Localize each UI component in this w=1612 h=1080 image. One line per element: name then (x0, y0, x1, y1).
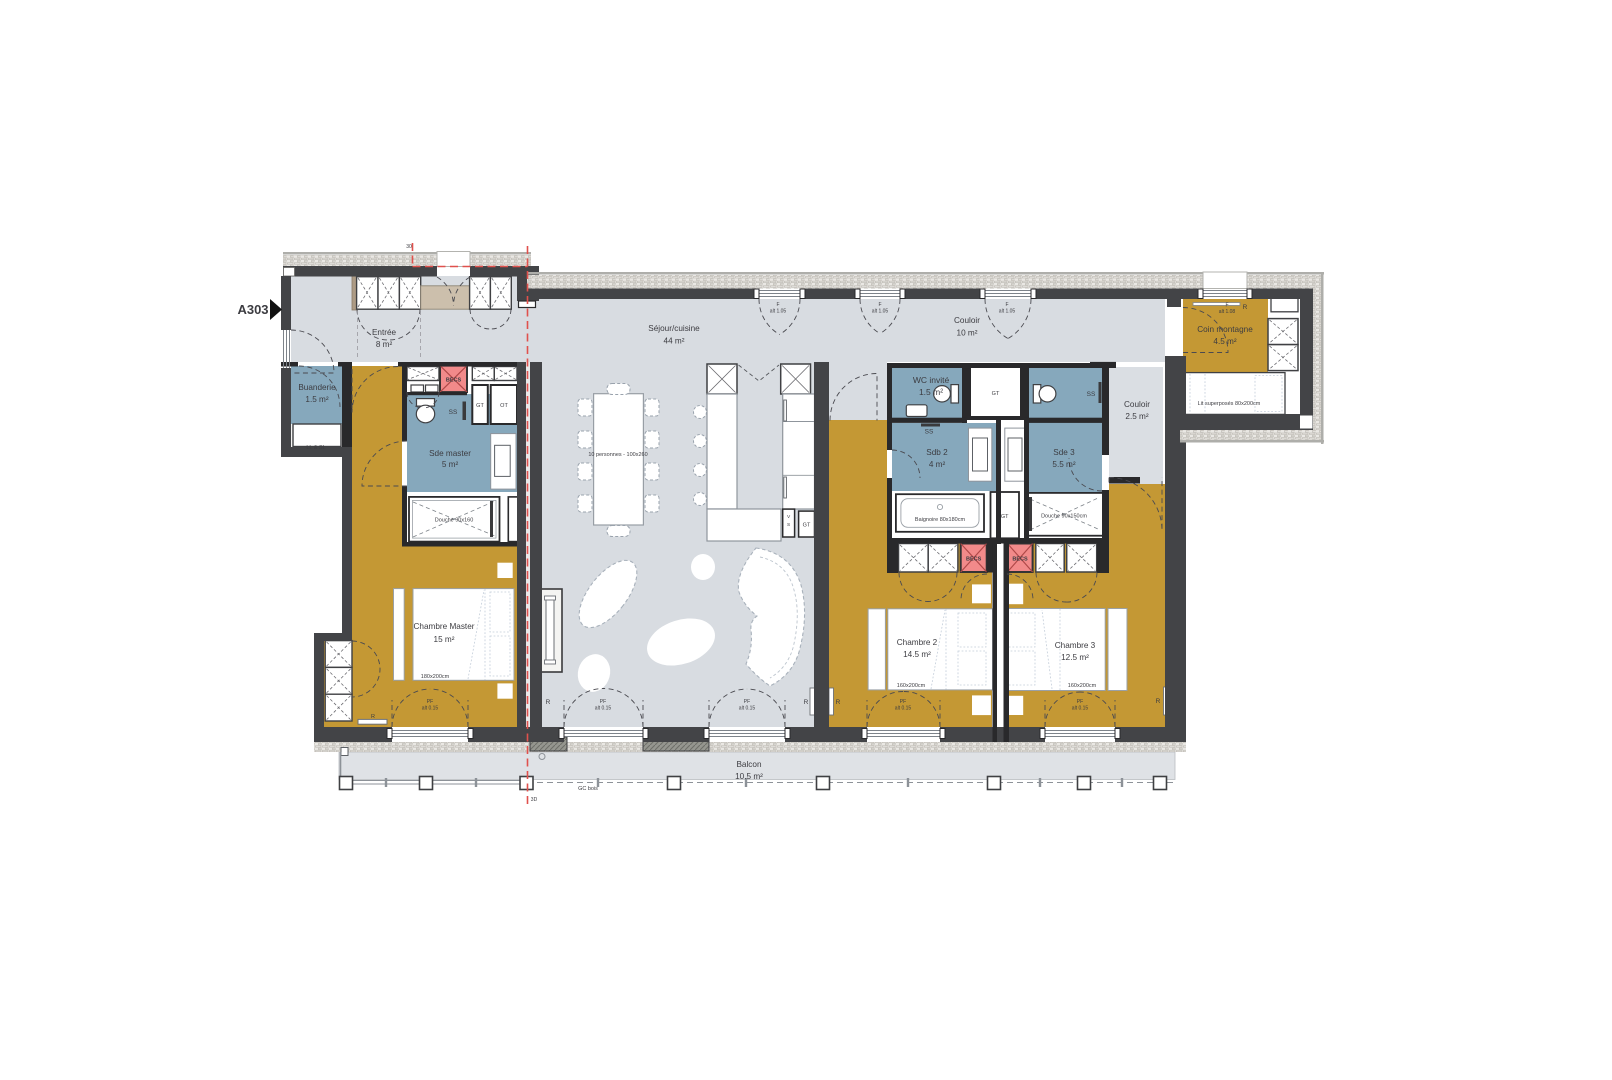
svg-text:2.5 m²: 2.5 m² (1125, 412, 1148, 421)
svg-text:F: F (1225, 303, 1228, 309)
svg-text:F: F (878, 302, 881, 308)
svg-text:Chambre 3: Chambre 3 (1055, 641, 1096, 650)
svg-text:BECS: BECS (1012, 557, 1028, 563)
svg-text:5.5 m²: 5.5 m² (1052, 460, 1075, 469)
svg-text:Douche 90x160: Douche 90x160 (435, 518, 474, 524)
svg-text:5 m²: 5 m² (442, 460, 459, 469)
svg-text:Chambre Master: Chambre Master (414, 622, 475, 631)
svg-text:SS: SS (925, 429, 934, 436)
svg-text:Entrée: Entrée (372, 328, 397, 337)
svg-text:GT: GT (992, 391, 1000, 397)
svg-text:10.5 m²: 10.5 m² (735, 772, 763, 781)
svg-text:GT: GT (1001, 514, 1009, 520)
svg-text:alt 0.15: alt 0.15 (1072, 706, 1089, 712)
svg-text:SS: SS (449, 409, 458, 416)
svg-text:Chambre 2: Chambre 2 (897, 638, 938, 647)
svg-text:PF: PF (427, 699, 433, 705)
svg-text:R: R (371, 714, 375, 720)
svg-text:alt 0.15: alt 0.15 (895, 706, 912, 712)
svg-text:12.5 m²: 12.5 m² (1061, 653, 1089, 662)
svg-text:LL & SL: LL & SL (306, 445, 325, 451)
svg-text:alt 0.15: alt 0.15 (595, 706, 612, 712)
svg-text:GT: GT (803, 523, 811, 529)
svg-text:alt 0.15: alt 0.15 (422, 706, 439, 712)
svg-text:PF: PF (744, 699, 750, 705)
svg-text:F: F (1005, 302, 1008, 308)
svg-text:BECS: BECS (966, 557, 982, 563)
svg-text:Lit superposés 80x200cm: Lit superposés 80x200cm (1198, 401, 1261, 407)
svg-text:160x200cm: 160x200cm (1068, 683, 1097, 689)
svg-text:Sde master: Sde master (429, 449, 471, 458)
svg-text:Sdb 2: Sdb 2 (926, 448, 948, 457)
svg-text:GC bois: GC bois (578, 786, 598, 792)
svg-text:S: S (787, 522, 790, 528)
svg-text:PF: PF (1077, 699, 1083, 705)
svg-text:4 m²: 4 m² (929, 460, 946, 469)
svg-text:BECS: BECS (446, 378, 462, 384)
svg-text:PF: PF (900, 699, 906, 705)
svg-text:R: R (546, 699, 551, 706)
svg-text:8 m²: 8 m² (376, 340, 393, 349)
svg-text:R: R (1243, 304, 1248, 311)
svg-text:alt 1.05: alt 1.05 (999, 309, 1016, 315)
svg-text:44 m²: 44 m² (664, 337, 685, 346)
svg-text:30: 30 (406, 244, 412, 250)
svg-text:GT: GT (476, 403, 484, 409)
svg-text:Sde 3: Sde 3 (1053, 448, 1075, 457)
svg-text:160x200cm: 160x200cm (897, 683, 926, 689)
svg-text:R: R (804, 699, 809, 706)
svg-text:R: R (836, 699, 841, 706)
svg-text:180x200cm: 180x200cm (421, 674, 450, 680)
svg-text:Couloir: Couloir (954, 316, 980, 325)
svg-text:4.5 m²: 4.5 m² (1213, 337, 1236, 346)
svg-text:1.5 m²: 1.5 m² (305, 395, 328, 404)
svg-text:OT: OT (500, 403, 508, 409)
svg-text:SS: SS (1087, 391, 1096, 398)
svg-text:1.5 m²: 1.5 m² (919, 387, 943, 397)
svg-text:WC invité: WC invité (913, 375, 950, 385)
svg-text:alt 1.05: alt 1.05 (770, 309, 787, 315)
svg-text:14.5 m²: 14.5 m² (903, 650, 931, 659)
svg-text:10 personnes - 100x260: 10 personnes - 100x260 (588, 452, 647, 458)
svg-text:alt 1.08: alt 1.08 (1219, 309, 1236, 315)
svg-text:Balcon: Balcon (736, 760, 761, 769)
svg-text:10 m²: 10 m² (957, 329, 978, 338)
svg-text:Baignoire 80x180cm: Baignoire 80x180cm (915, 517, 966, 523)
svg-text:3D: 3D (531, 797, 538, 803)
svg-text:R: R (1156, 698, 1161, 705)
svg-text:Séjour/cuisine: Séjour/cuisine (648, 324, 700, 333)
svg-text:Coin montagne: Coin montagne (1197, 325, 1253, 334)
svg-text:Douche 90x150cm: Douche 90x150cm (1041, 514, 1087, 520)
svg-text:F: F (776, 302, 779, 308)
svg-text:Buanderie: Buanderie (298, 383, 336, 392)
svg-text:alt 0.15: alt 0.15 (739, 706, 756, 712)
svg-text:A303: A303 (237, 302, 268, 317)
svg-text:PF: PF (600, 699, 606, 705)
svg-text:15 m²: 15 m² (434, 635, 455, 644)
svg-text:alt 1.05: alt 1.05 (872, 309, 889, 315)
svg-text:Couloir: Couloir (1124, 400, 1150, 409)
